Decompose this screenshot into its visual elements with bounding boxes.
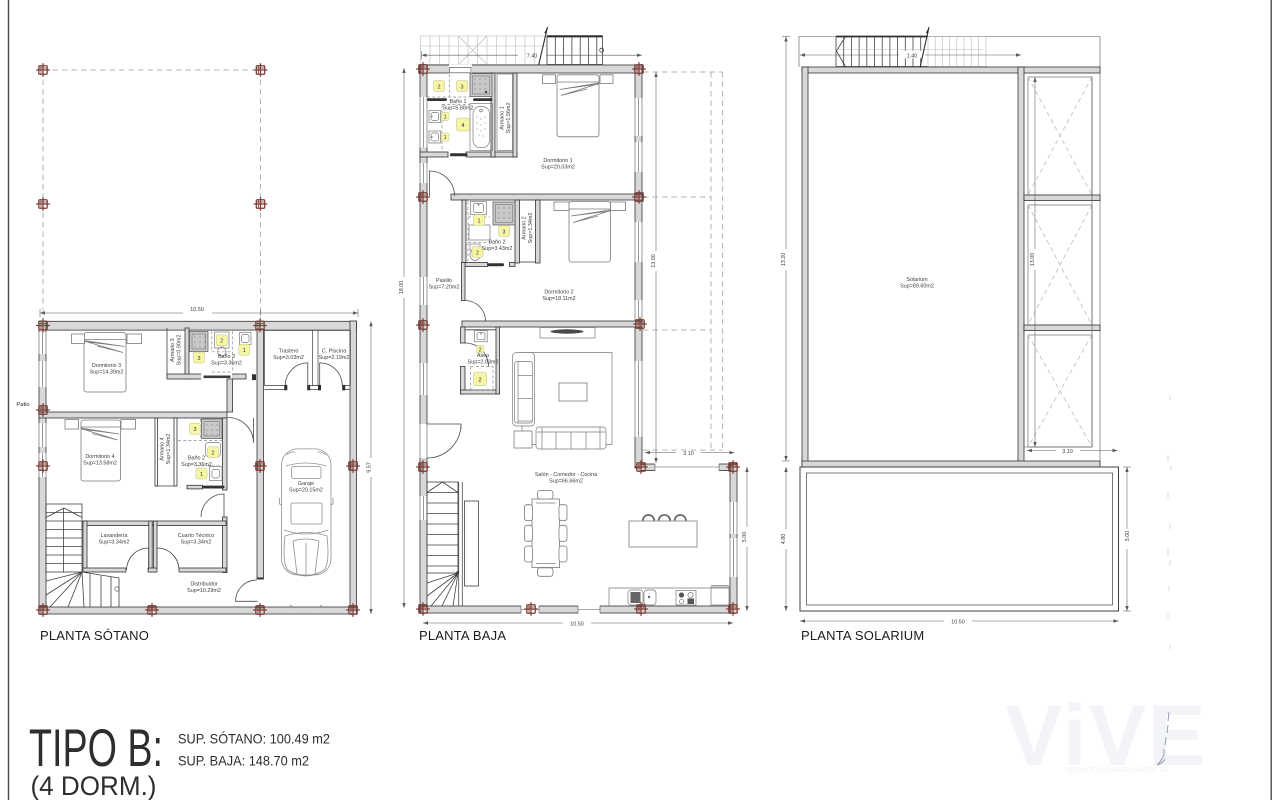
svg-text:SUP. SÓTANO: 100.49 m2: SUP. SÓTANO: 100.49 m2 (178, 731, 330, 747)
svg-text:(4 DORM.): (4 DORM.) (31, 771, 157, 800)
svg-text:Armario 2Sup=1.34m2: Armario 2Sup=1.34m2 (522, 213, 534, 244)
svg-text:3: 3 (198, 356, 201, 362)
svg-text:1: 1 (444, 115, 447, 121)
svg-text:2: 2 (212, 451, 215, 457)
svg-text:13.00: 13.00 (1030, 253, 1036, 267)
svg-text:SERVICIOS INMOBILIARIOS SL: SERVICIOS INMOBILIARIOS SL (1065, 767, 1168, 774)
svg-text:3.10: 3.10 (683, 451, 694, 457)
svg-text:PLANTA SÓTANO: PLANTA SÓTANO (40, 628, 149, 643)
svg-text:4.80: 4.80 (781, 534, 787, 545)
svg-text:1: 1 (243, 348, 246, 354)
svg-text:1.40: 1.40 (907, 53, 918, 59)
svg-text:10.50: 10.50 (570, 621, 584, 627)
svg-text:3: 3 (503, 229, 506, 235)
svg-text:7.40: 7.40 (527, 54, 538, 60)
svg-text:Armario 1Sup=1.56m2: Armario 1Sup=1.56m2 (500, 103, 512, 134)
svg-text:2: 2 (438, 84, 441, 90)
svg-text:13.20: 13.20 (781, 253, 787, 267)
svg-text:5.00: 5.00 (1125, 531, 1131, 542)
svg-text:2: 2 (220, 339, 223, 345)
svg-text:TIPO B:: TIPO B: (29, 719, 163, 778)
svg-text:GarajeSup=20.15m2: GarajeSup=20.15m2 (289, 481, 323, 493)
svg-text:1: 1 (444, 135, 447, 141)
svg-text:3.10: 3.10 (1062, 449, 1073, 455)
svg-text:1: 1 (478, 218, 481, 224)
svg-text:TrasteroSup=3.03m2: TrasteroSup=3.03m2 (273, 349, 304, 361)
svg-text:Baño 2Sup=3.36m2: Baño 2Sup=3.36m2 (181, 456, 212, 468)
svg-text:10.50: 10.50 (190, 307, 204, 313)
svg-text:1: 1 (200, 472, 203, 478)
svg-text:Dormitorio 1Sup=20.03m2: Dormitorio 1Sup=20.03m2 (541, 158, 575, 170)
svg-text:PLANTA SOLARIUM: PLANTA SOLARIUM (801, 628, 924, 643)
svg-text:LavanderíaSup=3.34m2: LavanderíaSup=3.34m2 (99, 533, 130, 545)
svg-text:Dormitorio 2Sup=18.11m2: Dormitorio 2Sup=18.11m2 (542, 290, 575, 302)
svg-text:Dormitorio 3Sup=14.39m2: Dormitorio 3Sup=14.39m2 (90, 363, 124, 375)
svg-text:9.57: 9.57 (367, 462, 373, 473)
svg-text:Armario 4Sup=1.34m2: Armario 4Sup=1.34m2 (160, 434, 172, 465)
svg-text:SolariumSup=89.60m2: SolariumSup=89.60m2 (900, 277, 934, 289)
svg-text:2: 2 (476, 250, 479, 256)
svg-text:AseoSup=2.03m2: AseoSup=2.03m2 (468, 353, 499, 365)
svg-text:SUP. BAJA: 148.70 m2: SUP. BAJA: 148.70 m2 (178, 753, 309, 769)
svg-text:3: 3 (461, 84, 464, 90)
svg-text:Baño 2Sup=3.43m2: Baño 2Sup=3.43m2 (482, 240, 513, 252)
svg-text:C. PiscinaSup=2.19m2: C. PiscinaSup=2.19m2 (319, 349, 350, 361)
svg-text:DistribuidorSup=10.29m2: DistribuidorSup=10.29m2 (187, 582, 221, 594)
svg-text:5.00: 5.00 (742, 532, 748, 543)
svg-text:Armario 3Sup=0.90m2: Armario 3Sup=0.90m2 (170, 335, 182, 366)
svg-text:Baño 3Sup=3.36m2: Baño 3Sup=3.36m2 (211, 354, 242, 366)
svg-text:PLANTA BAJA: PLANTA BAJA (419, 628, 506, 643)
svg-text:Cuarto TécnicoSup=3.34m2: Cuarto TécnicoSup=3.34m2 (178, 533, 214, 545)
svg-text:2: 2 (478, 378, 481, 384)
svg-text:Salón - Comedor - CocinaSup=66: Salón - Comedor - CocinaSup=66.66m2 (535, 472, 597, 484)
svg-text:PasilloSup=7.20m2: PasilloSup=7.20m2 (429, 278, 460, 290)
svg-text:3: 3 (194, 427, 197, 433)
svg-text:Patio: Patio (16, 402, 29, 408)
svg-text:Dormitorio 4Sup=13.58m2: Dormitorio 4Sup=13.58m2 (83, 454, 117, 466)
svg-text:10.50: 10.50 (951, 619, 965, 625)
svg-text:18.00: 18.00 (399, 281, 405, 295)
svg-text:13.00: 13.00 (651, 254, 657, 268)
svg-text:Baño 1Sup=5.88m2: Baño 1Sup=5.88m2 (443, 99, 474, 111)
